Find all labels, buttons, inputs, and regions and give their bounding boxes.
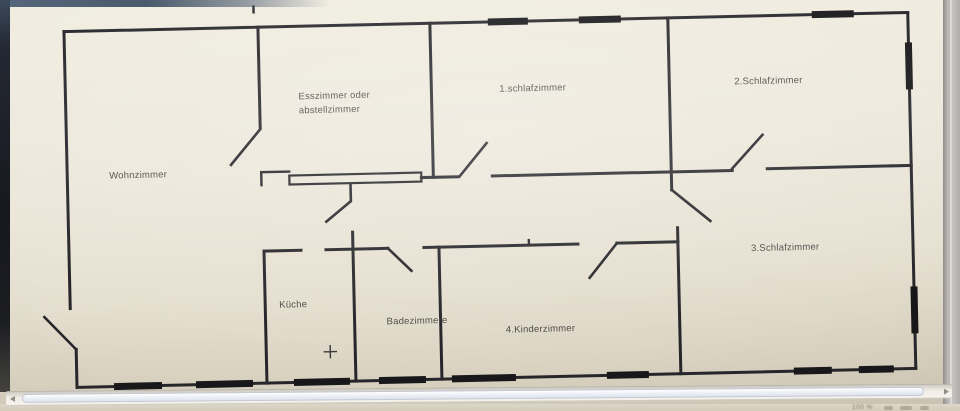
window-right-2	[914, 286, 915, 333]
window-bottom-4	[379, 379, 426, 380]
room-label-schlafzimmer2: 2.Schlafzimmer	[734, 75, 802, 88]
wall-badezimmer-kinderzimmer	[439, 247, 442, 379]
wall-schlafzimmer2-schlafzimmer3	[767, 165, 911, 168]
wall-outer-top	[64, 12, 908, 31]
window-bottom-2	[196, 383, 253, 384]
floorplan-svg: Wohnzimmer Esszimmer oder abstellzimmer …	[0, 0, 960, 411]
window-right-chrome	[943, 0, 960, 411]
window-bottom-3	[294, 381, 350, 382]
wall-hall-lower-b	[424, 244, 578, 247]
floorplan-drawing: Wohnzimmer Esszimmer oder abstellzimmer …	[0, 0, 960, 411]
window-bottom-5	[452, 377, 516, 378]
status-control-icon[interactable]	[920, 406, 929, 411]
status-control-icon[interactable]	[900, 406, 912, 411]
room-label-kinderzimmer: 4.Kinderzimmer	[506, 323, 576, 336]
scroll-right-arrow-icon[interactable]	[944, 388, 949, 394]
wall-hall-lower-a	[326, 248, 388, 249]
screen-left-bezel	[0, 0, 10, 392]
door-leaf-schlafzimmer1	[459, 143, 488, 177]
chrome-groove	[950, 0, 952, 411]
crosshair-cursor-icon	[324, 346, 336, 358]
room-label-kueche: Küche	[279, 299, 307, 311]
window-top-3	[812, 14, 854, 15]
window-bottom-8	[859, 369, 894, 370]
wall-hall-upper-a	[421, 177, 457, 178]
wall-outer-left-lower	[76, 349, 77, 387]
window-right-1	[908, 42, 909, 89]
room-label-esszimmer-line2: abstellzimmer	[299, 104, 360, 116]
zoom-level-text: 100 %	[852, 404, 873, 411]
room-label-badezimmer: Badezimmere	[387, 315, 448, 327]
wall-hall-upper-b	[492, 170, 732, 175]
door-leaf-hallway	[325, 184, 351, 222]
window-bottom-6	[607, 374, 649, 375]
wall-hall-stub-left	[261, 172, 289, 186]
door-leaf-schlafzimmer3-hall	[672, 189, 711, 222]
room-label-schlafzimmer3: 3.Schlafzimmer	[751, 242, 819, 255]
status-bar: 100 %	[0, 404, 960, 411]
scroll-left-arrow-icon[interactable]	[10, 395, 15, 401]
room-label-esszimmer-line1: Esszimmer oder	[298, 90, 370, 103]
door-leaf-esszimmer	[230, 129, 261, 165]
status-control-icon[interactable]	[884, 406, 893, 411]
room-label-wohnzimmer: Wohnzimmer	[109, 169, 167, 181]
photo-of-screen: Wohnzimmer Esszimmer oder abstellzimmer …	[0, 0, 960, 411]
wall-kinderzimmer-schlafzimmer3	[678, 228, 681, 374]
screen-top-bezel	[0, 0, 330, 7]
wall-wohnzimmer-esszimmer	[258, 27, 260, 127]
drawing-page: Wohnzimmer Esszimmer oder abstellzimmer …	[0, 0, 960, 411]
wall-schlafzimmer1-schlafzimmer2	[668, 18, 672, 190]
sliding-door-wohnzimmer	[289, 173, 421, 185]
window-top-2	[579, 19, 621, 20]
window-top-1	[488, 21, 528, 22]
wall-hall-lower-c	[617, 242, 678, 243]
wall-outer-left-upper	[64, 32, 70, 309]
wall-esszimmer-schlafzimmer1	[430, 23, 433, 177]
window-bottom-1	[114, 385, 162, 386]
door-leaf-schlafzimmer2	[731, 135, 763, 169]
door-leaf-entrance	[44, 316, 76, 350]
window-bottom-7	[794, 370, 832, 371]
door-leaf-badezimmer	[388, 248, 412, 272]
wall-kueche-left	[264, 250, 304, 383]
room-label-schlafzimmer1: 1.schlafzimmer	[499, 82, 566, 95]
wall-kueche-badezimmer	[353, 232, 356, 381]
door-leaf-kinderzimmer	[589, 243, 618, 278]
